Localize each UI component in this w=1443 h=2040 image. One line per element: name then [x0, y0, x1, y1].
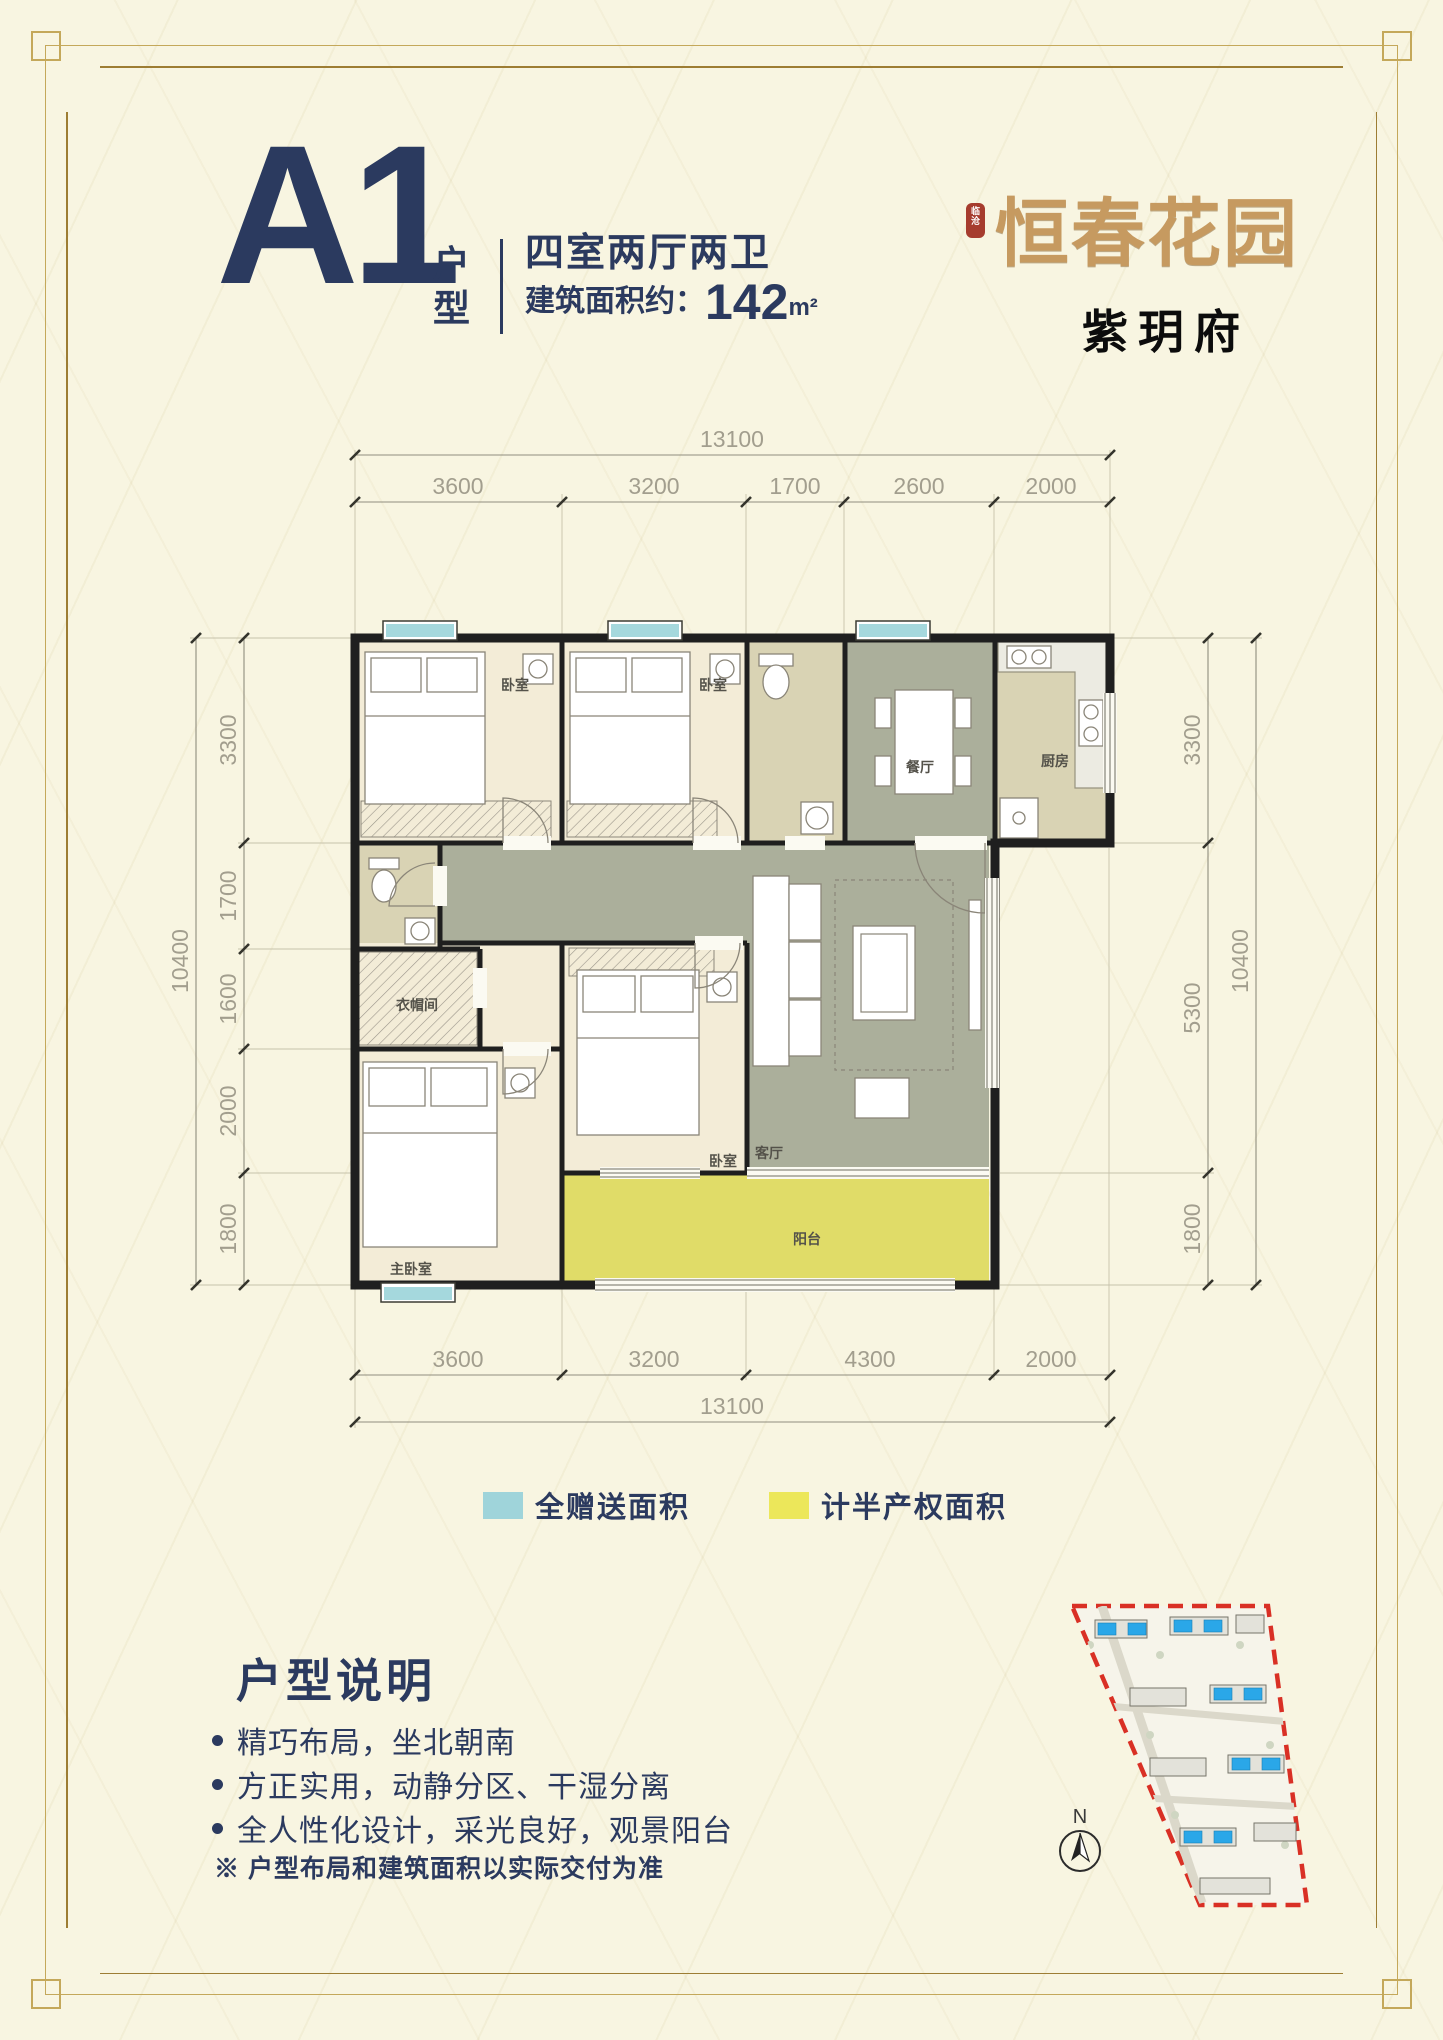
label-bedroom-3: 卧室: [709, 1153, 737, 1169]
dim-bottom-1: 3600: [432, 1346, 483, 1372]
bay-window-cyan: [859, 624, 927, 637]
disclaimer: ※ 户型布局和建筑面积以实际交付为准: [214, 1849, 664, 1885]
dim-left-2: 1700: [215, 870, 241, 921]
note-bullet-2: 方正实用，动静分区、干湿分离: [212, 1762, 671, 1806]
dim-bottom-4: 2000: [1025, 1346, 1076, 1372]
plan-code: A1: [216, 116, 453, 314]
legend-swatch-yellow: [769, 1492, 809, 1519]
page-border-inner: [100, 1973, 1343, 1975]
area-row: 建筑面积约： 142 m²: [525, 276, 818, 325]
area-value: 142: [705, 280, 788, 325]
label-bedroom-2: 卧室: [699, 677, 727, 693]
corner-ornament: [31, 31, 61, 61]
brand-subname: 紫玥府: [1082, 296, 1250, 362]
label-kitchen: 厨房: [1041, 753, 1069, 769]
bullet-dot: [212, 1779, 223, 1790]
legend-item-gifted: 全赠送面积: [483, 1484, 690, 1526]
dim-right-1: 3300: [1179, 714, 1205, 765]
plan-spec: 四室两厅两卫: [525, 222, 771, 278]
compass-needle-dark: [1071, 1833, 1080, 1861]
dim-left-3: 1600: [215, 973, 241, 1024]
dim-bottom-2: 3200: [628, 1346, 679, 1372]
page-border-inner: [1376, 112, 1378, 1928]
dim-top-1: 3600: [432, 473, 483, 499]
dim-bottom-3: 4300: [844, 1346, 895, 1372]
dim-right-2: 5300: [1179, 982, 1205, 1033]
bay-window-cyan: [384, 1287, 452, 1300]
legend-swatch-cyan: [483, 1492, 523, 1519]
room-hallway: [440, 843, 747, 943]
bay-window-cyan: [386, 624, 454, 637]
note-text: 精巧布局，坐北朝南: [237, 1718, 516, 1762]
dim-top-2: 3200: [628, 473, 679, 499]
dim-top-5: 2000: [1025, 473, 1076, 499]
corner-ornament: [1382, 1979, 1412, 2009]
dim-bottom-total: 13100: [700, 1393, 764, 1419]
label-balcony: 阳台: [793, 1231, 821, 1247]
note-text: 方正实用，动静分区、干湿分离: [237, 1762, 671, 1806]
dim-right-3: 1800: [1179, 1203, 1205, 1254]
dim-top-total: 13100: [700, 430, 764, 452]
dim-left-5: 1800: [215, 1203, 241, 1254]
floor-plan-body: 卧室 卧室 餐厅 厨房 衣帽间 卧室 客厅 主卧室 阳台: [355, 621, 1117, 1302]
dim-top-3: 1700: [769, 473, 820, 499]
room-balcony: [562, 1173, 989, 1285]
title-divider: [500, 239, 503, 334]
dim-left-1: 3300: [215, 714, 241, 765]
label-living: 客厅: [754, 1145, 783, 1161]
dim-right-total: 10400: [1227, 929, 1253, 993]
page-border-inner: [66, 112, 68, 1928]
dim-left-4: 2000: [215, 1085, 241, 1136]
bay-window-cyan: [611, 624, 679, 637]
notes-title: 户型说明: [236, 1645, 436, 1711]
legend-item-half-rights: 计半产权面积: [769, 1484, 1007, 1526]
corner-ornament: [31, 1979, 61, 2009]
compass-needle-light: [1080, 1833, 1089, 1861]
floor-plan: 13100 3600 3200 1700 2600 2000 3600 3200…: [150, 430, 1300, 1465]
label-closet: 衣帽间: [396, 997, 438, 1013]
legend-label-gifted: 全赠送面积: [535, 1484, 690, 1526]
dim-top-4: 2600: [893, 473, 944, 499]
area-label: 建筑面积约：: [525, 276, 705, 325]
note-bullet-1: 精巧布局，坐北朝南: [212, 1718, 516, 1762]
brand-seal: 临沧: [966, 203, 985, 238]
corner-ornament: [1382, 31, 1412, 61]
label-master: 主卧室: [390, 1261, 432, 1277]
north-label: N: [1073, 1806, 1087, 1828]
note-bullet-3: 全人性化设计，采光良好，观景阳台: [212, 1806, 733, 1850]
bullet-dot: [212, 1823, 223, 1834]
site-plan: N: [1040, 1585, 1340, 1925]
page-border-inner: [100, 66, 1343, 68]
dim-left-total: 10400: [167, 929, 193, 993]
brand-logo: 恒春花园: [995, 194, 1299, 275]
label-bedroom-1: 卧室: [501, 677, 529, 693]
legend-label-half-rights: 计半产权面积: [821, 1484, 1007, 1526]
area-unit: m²: [788, 294, 817, 325]
plan-code-label: 户型: [433, 243, 477, 332]
note-text: 全人性化设计，采光良好，观景阳台: [237, 1806, 733, 1850]
compass: N: [1060, 1806, 1100, 1871]
bullet-dot: [212, 1735, 223, 1746]
label-dining: 餐厅: [905, 759, 934, 775]
